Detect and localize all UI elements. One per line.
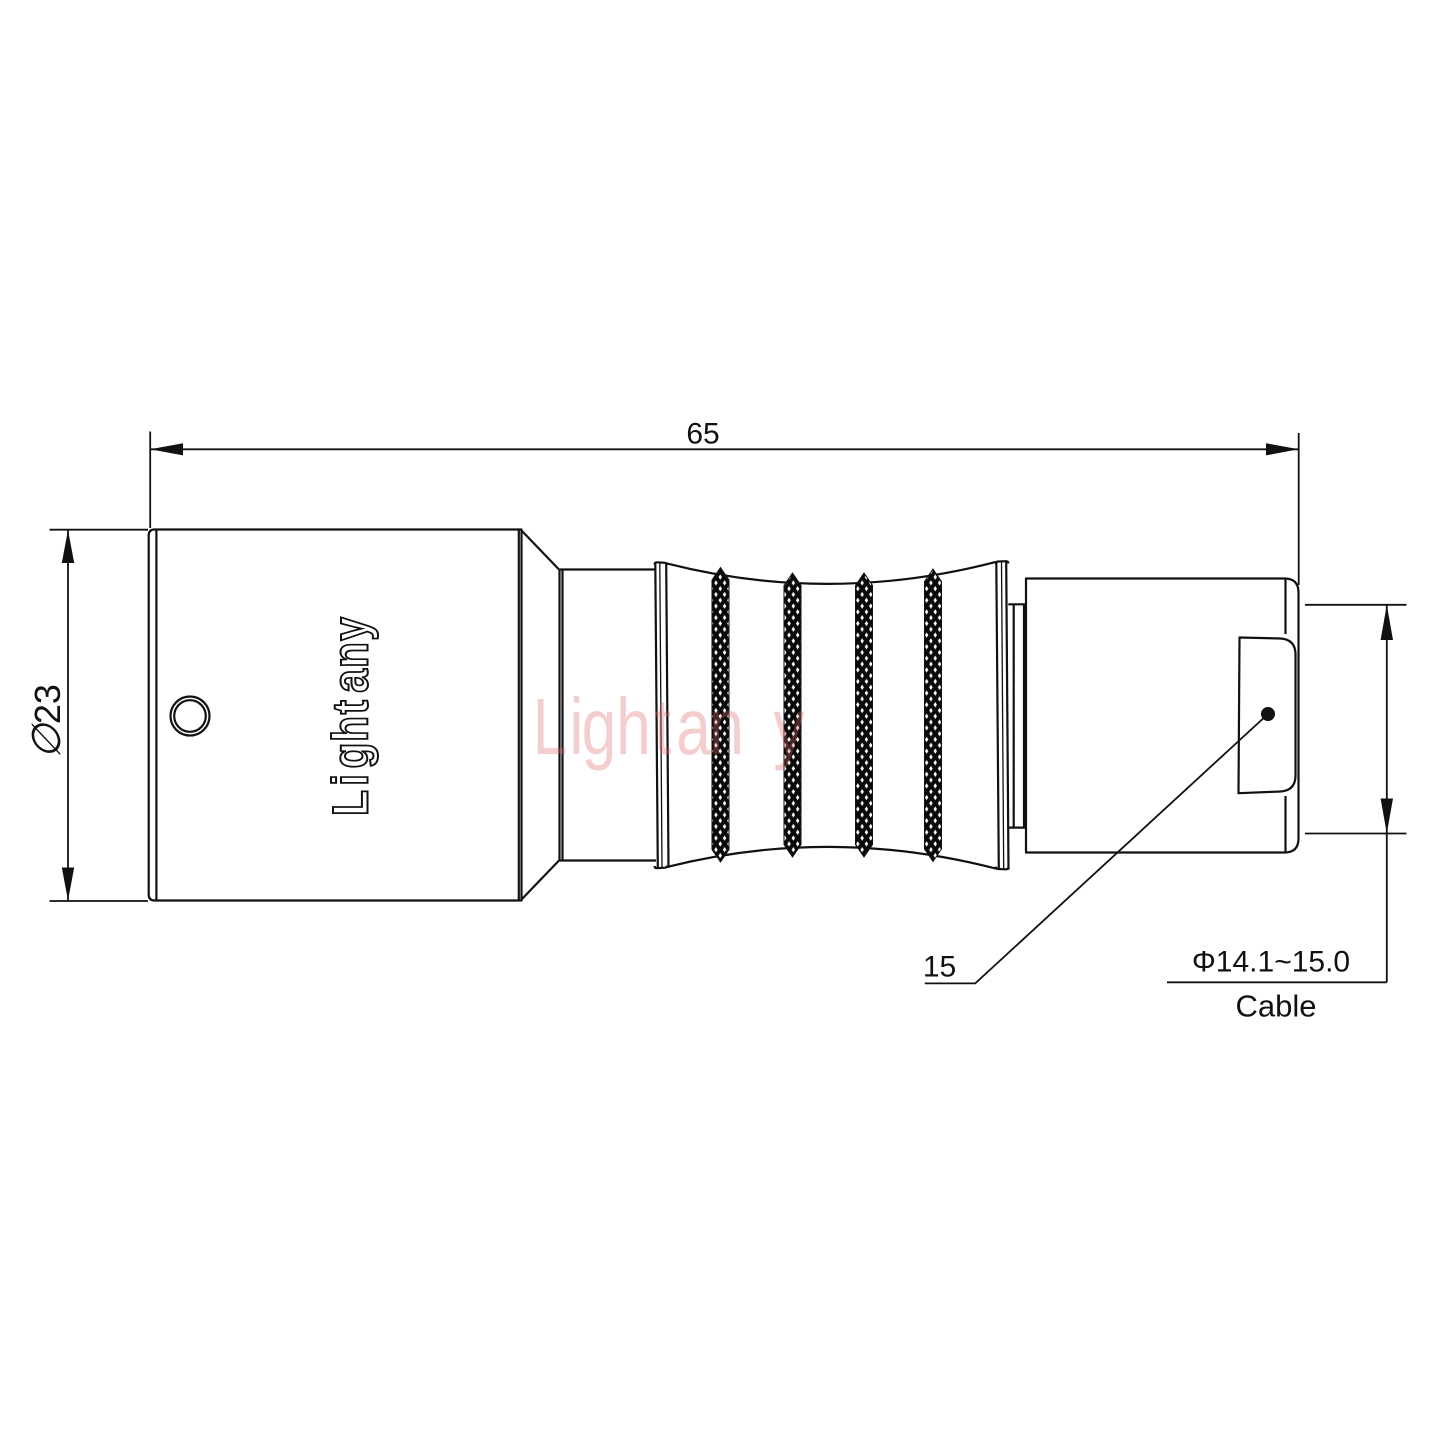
svg-text:∅23: ∅23 <box>25 684 69 759</box>
svg-text:Φ14.1~15.0: Φ14.1~15.0 <box>1192 946 1350 979</box>
svg-text:15: 15 <box>923 951 956 984</box>
svg-text:Lightany: Lightany <box>322 617 378 816</box>
svg-text:Cable: Cable <box>1236 989 1317 1024</box>
svg-text:65: 65 <box>686 418 719 451</box>
